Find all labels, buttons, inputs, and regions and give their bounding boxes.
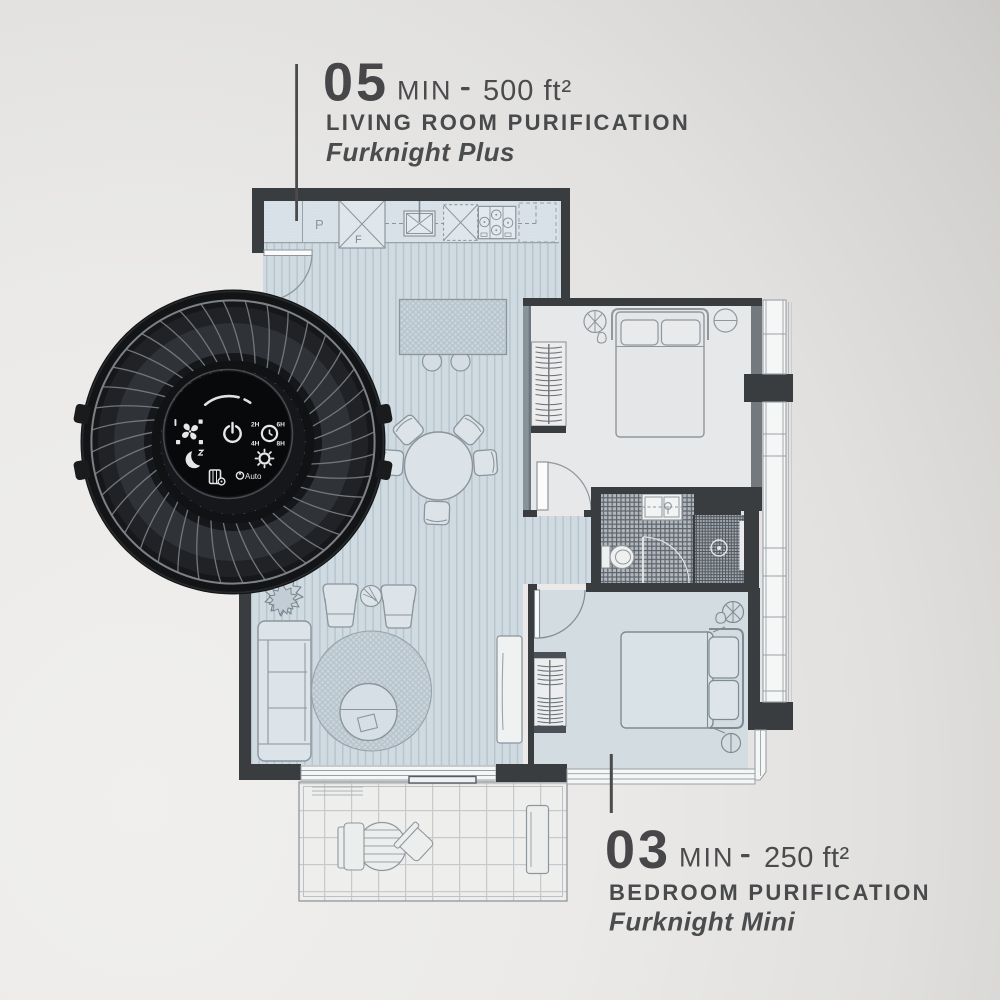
svg-text:8H: 8H <box>277 441 286 448</box>
svg-text:500 ft²: 500 ft² <box>483 75 572 107</box>
svg-text:F: F <box>355 234 362 246</box>
svg-text:Furknight Mini: Furknight Mini <box>609 907 795 937</box>
svg-text:03: 03 <box>605 820 671 880</box>
svg-text:4H: 4H <box>251 441 260 448</box>
svg-text:LIVING ROOM PURIFICATION: LIVING ROOM PURIFICATION <box>326 110 690 135</box>
svg-text:MIN: MIN <box>397 76 453 106</box>
svg-text:05: 05 <box>323 53 389 113</box>
svg-text:Furknight Plus: Furknight Plus <box>326 137 515 167</box>
svg-text:BEDROOM PURIFICATION: BEDROOM PURIFICATION <box>609 880 931 905</box>
svg-text:2H: 2H <box>251 422 260 429</box>
svg-text:MIN: MIN <box>679 843 735 873</box>
svg-text:250 ft²: 250 ft² <box>764 842 850 874</box>
svg-text:6H: 6H <box>277 422 286 429</box>
svg-text:P: P <box>315 217 324 232</box>
svg-text:Auto: Auto <box>245 472 262 481</box>
